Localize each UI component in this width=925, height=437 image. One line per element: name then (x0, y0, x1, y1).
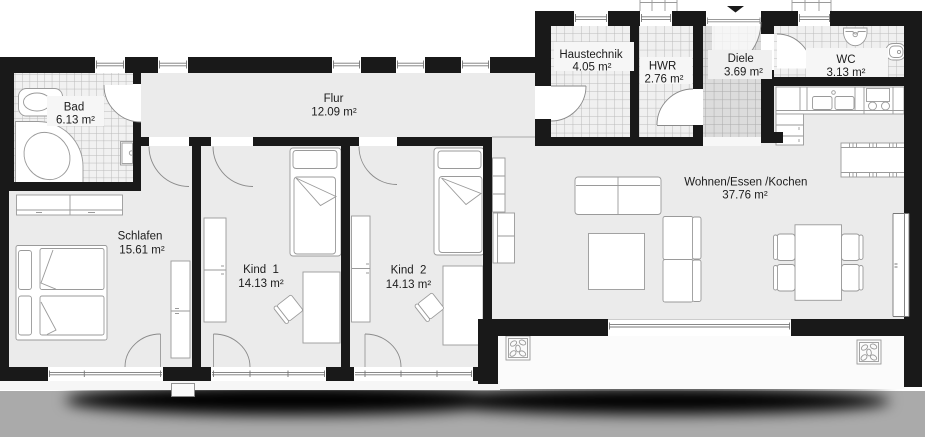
svg-text:Wohnen/Essen /Kochen: Wohnen/Essen /Kochen (684, 177, 807, 189)
svg-text:12.09 m²: 12.09 m² (311, 107, 357, 119)
svg-text:2.76 m²: 2.76 m² (645, 74, 684, 86)
svg-text:14.13 m²: 14.13 m² (238, 278, 284, 290)
svg-text:3.13 m²: 3.13 m² (827, 67, 866, 79)
svg-text:4.05 m²: 4.05 m² (573, 62, 612, 74)
svg-text:6.13 m²: 6.13 m² (56, 115, 95, 127)
svg-text:15.61 m²: 15.61 m² (119, 245, 165, 257)
svg-text:HWR: HWR (649, 60, 676, 72)
svg-text:Kind 2: Kind 2 (391, 265, 427, 277)
svg-text:Schlafen: Schlafen (118, 231, 163, 243)
svg-text:WC: WC (836, 54, 855, 66)
svg-text:3.69 m²: 3.69 m² (724, 67, 763, 79)
svg-text:14.13 m²: 14.13 m² (386, 279, 432, 291)
svg-text:Bad: Bad (64, 102, 84, 114)
svg-text:Flur: Flur (324, 93, 344, 105)
svg-text:Haustechnik: Haustechnik (559, 49, 623, 61)
svg-text:Diele: Diele (728, 53, 754, 65)
svg-text:Kind 1: Kind 1 (243, 264, 279, 276)
svg-text:37.76 m²: 37.76 m² (722, 190, 768, 202)
